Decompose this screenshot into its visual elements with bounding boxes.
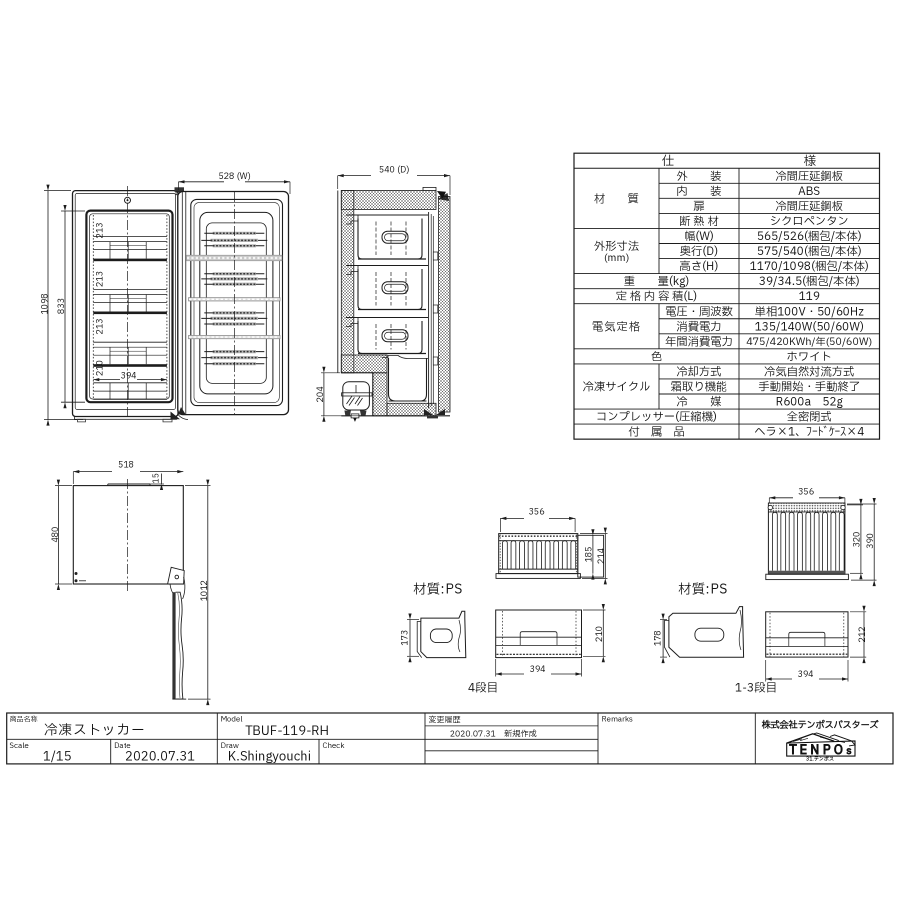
svg-text:1098: 1098 <box>38 293 51 314</box>
svg-text:390: 390 <box>864 533 877 549</box>
svg-text:変更履歴: 変更履歴 <box>428 715 461 727</box>
svg-text:K.Shingyouchi: K.Shingyouchi <box>228 748 311 767</box>
svg-text:394: 394 <box>797 668 813 681</box>
svg-text:1012: 1012 <box>198 579 211 601</box>
svg-text:2020.07.31: 2020.07.31 <box>125 748 195 767</box>
svg-text:仕: 仕 <box>662 152 675 171</box>
svg-text:ヘラ×1、ﾌｰﾄﾞｹｰｽ×4: ヘラ×1、ﾌｰﾄﾞｹｰｽ×4 <box>754 424 864 441</box>
svg-text:付 属 品: 付 属 品 <box>628 424 685 441</box>
svg-text:135/140W(50/60W): 135/140W(50/60W) <box>755 318 864 335</box>
svg-text:528 (W): 528 (W) <box>218 170 250 183</box>
svg-text:213: 213 <box>93 318 106 334</box>
svg-text:Scale: Scale <box>9 741 29 752</box>
svg-text:株式会社テンポスバスターズ: 株式会社テンポスバスターズ <box>762 719 880 733</box>
svg-text:冷凍ストッカー: 冷凍ストッカー <box>44 721 146 741</box>
svg-text:4段目: 4段目 <box>468 681 498 698</box>
svg-text:1/15: 1/15 <box>43 748 72 767</box>
svg-text:214: 214 <box>595 548 608 564</box>
svg-text:年間消費電力: 年間消費電力 <box>665 333 733 350</box>
svg-text:518: 518 <box>118 459 134 472</box>
svg-text:材質:PS: 材質:PS <box>678 580 727 600</box>
svg-text:213: 213 <box>93 222 106 238</box>
svg-text:173: 173 <box>398 630 411 646</box>
svg-text:Check: Check <box>323 741 346 752</box>
svg-text:材 質: 材 質 <box>594 190 639 207</box>
svg-text:540 (D): 540 (D) <box>379 163 409 176</box>
svg-text:210: 210 <box>593 626 606 642</box>
svg-text:冷凍サイクル: 冷凍サイクル <box>583 379 651 396</box>
svg-text:210: 210 <box>93 360 106 376</box>
svg-text:Model: Model <box>221 715 244 726</box>
svg-text:320: 320 <box>850 531 863 547</box>
svg-text:356: 356 <box>798 486 814 499</box>
svg-text:色: 色 <box>651 348 662 365</box>
svg-text:480: 480 <box>49 526 62 542</box>
svg-text:212: 212 <box>856 626 869 643</box>
svg-text:31.テンポス: 31.テンポス <box>806 755 834 763</box>
svg-text:178: 178 <box>652 630 665 646</box>
svg-text:(mm): (mm) <box>604 251 629 266</box>
svg-text:394: 394 <box>529 663 545 676</box>
svg-text:185: 185 <box>582 546 595 562</box>
svg-text:Remarks: Remarks <box>602 715 633 726</box>
svg-text:833: 833 <box>55 298 68 314</box>
svg-text:1-3段目: 1-3段目 <box>735 681 777 698</box>
svg-text:電気定格: 電気定格 <box>592 318 641 335</box>
svg-text:TBUF-119-RH: TBUF-119-RH <box>244 722 329 741</box>
svg-text:2020.07.31 新規作成: 2020.07.31 新規作成 <box>450 727 537 740</box>
svg-text:15: 15 <box>151 473 163 483</box>
svg-text:材質:PS: 材質:PS <box>413 580 462 600</box>
svg-text:商品名称: 商品名称 <box>10 716 38 726</box>
svg-text:394: 394 <box>120 369 136 382</box>
svg-text:356: 356 <box>528 506 544 519</box>
svg-text:213: 213 <box>93 271 106 287</box>
svg-text:204: 204 <box>314 386 327 402</box>
